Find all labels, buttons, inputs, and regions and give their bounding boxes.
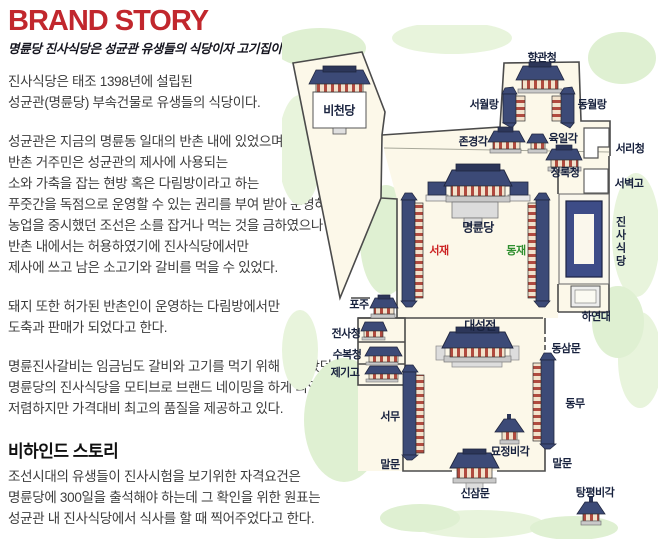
building-jeonsacheong — [361, 322, 387, 340]
map-label-hayeondae: 하연대 — [582, 308, 611, 324]
building-hyanggwancheong — [516, 62, 564, 93]
map-label-seojae: 서재 — [429, 242, 448, 258]
map-label-tangpyeongbigak: 탕평비각 — [576, 484, 614, 500]
map-label-jeonsacheong: 전사청 — [332, 325, 361, 341]
building-jegigo — [365, 366, 402, 382]
building-tangpyeongbigak — [577, 496, 605, 525]
building-poju — [370, 295, 398, 318]
building-subokcheong — [365, 347, 402, 365]
map-label-poju: 포주 — [349, 296, 368, 312]
map-label-jongyeonggak: 존경각 — [459, 133, 488, 149]
map-label-myojeongbigak: 묘정비각 — [491, 443, 529, 459]
building-bicheondang — [309, 66, 370, 134]
map-label-jegigo: 제기고 — [331, 364, 360, 380]
building-dongmu — [533, 353, 556, 449]
building-dongjae — [528, 193, 550, 307]
brand-story-page: BRAND STORY 명륜당 진사식당은 성균관 유생들의 식당이자 고기집이… — [0, 0, 658, 539]
building-jinsasikdang-highlight — [559, 194, 609, 284]
map-label-dongwollang: 동월랑 — [578, 96, 607, 112]
map-label-seowollang: 서월랑 — [470, 96, 499, 112]
map-label-bicheondang: 비천당 — [323, 102, 355, 119]
building-hayeondae — [571, 286, 600, 307]
map-label-dongjae: 동재 — [506, 242, 525, 258]
map-label-subokcheong: 수복청 — [333, 346, 362, 362]
map-label-jinsasikdang: 진사식당 — [612, 216, 628, 268]
map-label-malmun-right: 말문 — [552, 455, 571, 471]
map-label-myeongnyundang: 명륜당 — [462, 219, 494, 236]
map-label-seoricheong: 서리청 — [616, 140, 645, 156]
map-label-dongsammun: 동삼문 — [552, 340, 581, 356]
map-label-dongmu: 동무 — [565, 395, 584, 411]
map-label-sinsammun: 신삼문 — [461, 485, 490, 501]
building-seomu — [402, 365, 424, 460]
sungkyunkwan-site-map: 비천당 향관청 서월랑 동월랑 존경각 육일각 서리청 정록청 서벽고 명륜당 … — [282, 25, 658, 539]
map-label-seobyeokgo: 서벽고 — [615, 175, 644, 191]
map-label-yukilgak: 육일각 — [549, 130, 578, 146]
map-label-jeongnokcheong: 정록청 — [551, 164, 580, 180]
map-label-seomu: 서무 — [380, 408, 399, 424]
map-label-malmun-left: 말문 — [380, 456, 399, 472]
building-seobyeokgo — [584, 169, 608, 193]
map-label-daeseongjeon: 대성전 — [464, 317, 496, 334]
building-seojae — [401, 193, 423, 307]
map-label-hyanggwancheong: 향관청 — [528, 49, 557, 65]
